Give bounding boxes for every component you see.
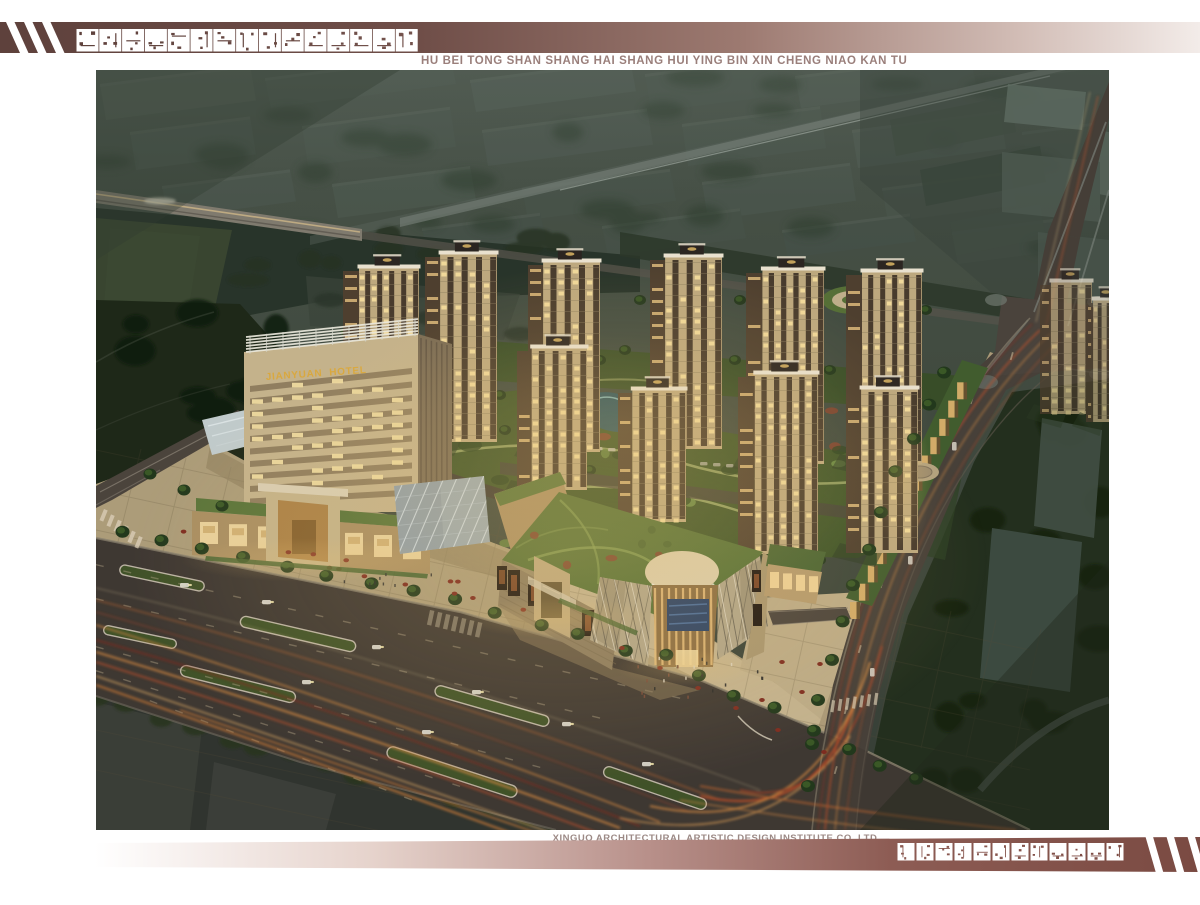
- svg-text:HU BEI TONG SHAN SHANG HAI SHA: HU BEI TONG SHAN SHANG HAI SHANG HUI YIN…: [421, 55, 907, 67]
